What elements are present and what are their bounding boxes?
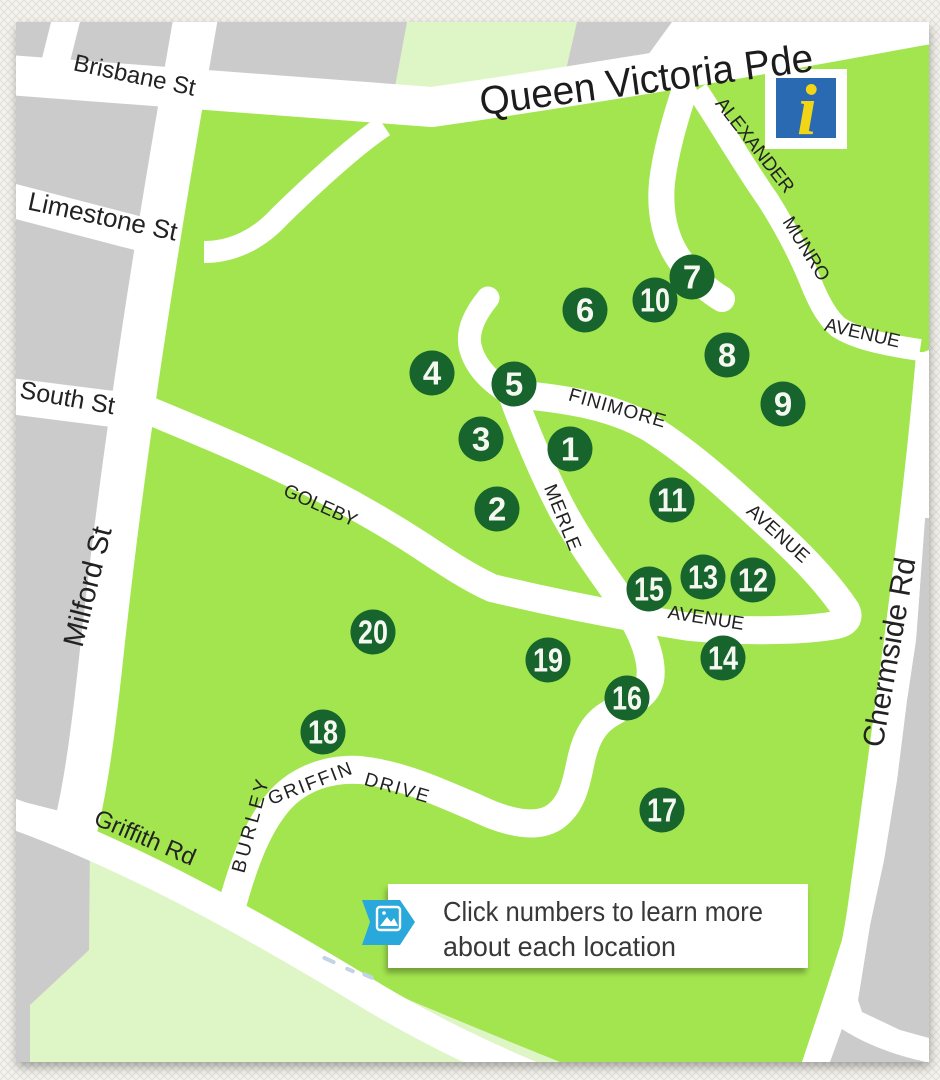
svg-text:15: 15 <box>634 571 664 608</box>
svg-text:13: 13 <box>688 559 718 596</box>
svg-text:3: 3 <box>472 421 490 458</box>
svg-text:9: 9 <box>774 386 792 423</box>
svg-text:12: 12 <box>738 562 768 599</box>
svg-text:2: 2 <box>488 491 506 528</box>
svg-text:17: 17 <box>647 792 677 829</box>
svg-text:5: 5 <box>505 366 523 403</box>
svg-text:i: i <box>797 70 817 150</box>
svg-text:18: 18 <box>308 714 338 751</box>
svg-text:19: 19 <box>533 642 563 679</box>
svg-text:8: 8 <box>718 337 736 374</box>
svg-text:1: 1 <box>561 431 579 468</box>
svg-text:16: 16 <box>612 680 642 717</box>
svg-text:about each location: about each location <box>443 931 676 962</box>
svg-text:6: 6 <box>576 292 594 329</box>
svg-text:10: 10 <box>640 282 670 319</box>
svg-text:7: 7 <box>683 259 701 296</box>
svg-text:4: 4 <box>423 355 442 392</box>
svg-text:20: 20 <box>358 614 388 651</box>
svg-text:Click numbers to learn more: Click numbers to learn more <box>443 896 763 927</box>
svg-text:14: 14 <box>708 640 739 677</box>
svg-text:11: 11 <box>657 482 687 519</box>
